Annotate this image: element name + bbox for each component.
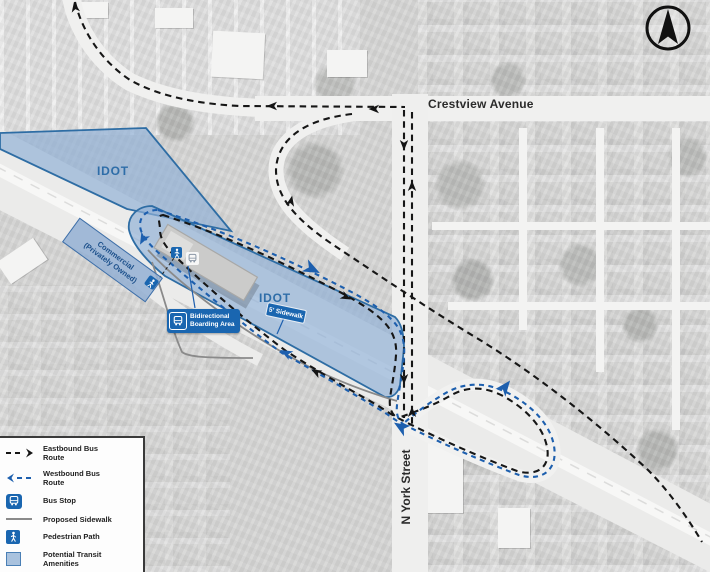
legend-item-transit-amenities: Potential Transit Amenities (6, 550, 139, 569)
eastbound-route-symbol (6, 447, 34, 459)
legend-label: Pedestrian Path (43, 532, 100, 541)
legend-item-bus-stop: Bus Stop (6, 494, 139, 509)
ramp-road-northwest (70, 0, 262, 108)
legend-label: Potential Transit Amenities (43, 550, 121, 569)
boarding-callout-line2: Boarding Area (190, 321, 235, 328)
street-label-crestview: Crestview Avenue (428, 97, 534, 111)
ramp-road-northeast (276, 114, 352, 254)
legend-label: Proposed Sidewalk (43, 515, 112, 524)
legend-item-pedestrian-path: Pedestrian Path (6, 530, 139, 544)
north-arrow-icon (642, 2, 694, 54)
boarding-area-callout: Bidirectional Boarding Area (167, 309, 240, 333)
bus-stop-icon-station (186, 252, 199, 265)
westbound-route-symbol (6, 472, 34, 484)
area-label-idot-upper: IDOT (97, 164, 129, 178)
legend-item-eastbound: Eastbound Bus Route (6, 444, 139, 463)
legend-item-proposed-sidewalk: Proposed Sidewalk (6, 515, 139, 524)
legend-label: Westbound Bus Route (43, 469, 121, 488)
legend-label: Eastbound Bus Route (43, 444, 121, 463)
bus-stop-icon (169, 312, 187, 330)
pedestrian-path-icon (171, 247, 182, 258)
proposed-sidewalk-symbol (6, 516, 34, 522)
legend-panel: Eastbound Bus Route Westbound Bus Route … (0, 436, 145, 572)
street-label-york: N York Street (399, 412, 413, 562)
bus-stop-icon (6, 494, 22, 509)
transit-amenities-swatch (6, 552, 21, 566)
boarding-callout-line1: Bidirectional (190, 313, 229, 320)
legend-item-westbound: Westbound Bus Route (6, 469, 139, 488)
legend-label: Bus Stop (43, 496, 76, 505)
transit-plan-map: Crestview Avenue N York Street IDOT IDOT… (0, 0, 710, 572)
pedestrian-path-icon (6, 530, 20, 544)
